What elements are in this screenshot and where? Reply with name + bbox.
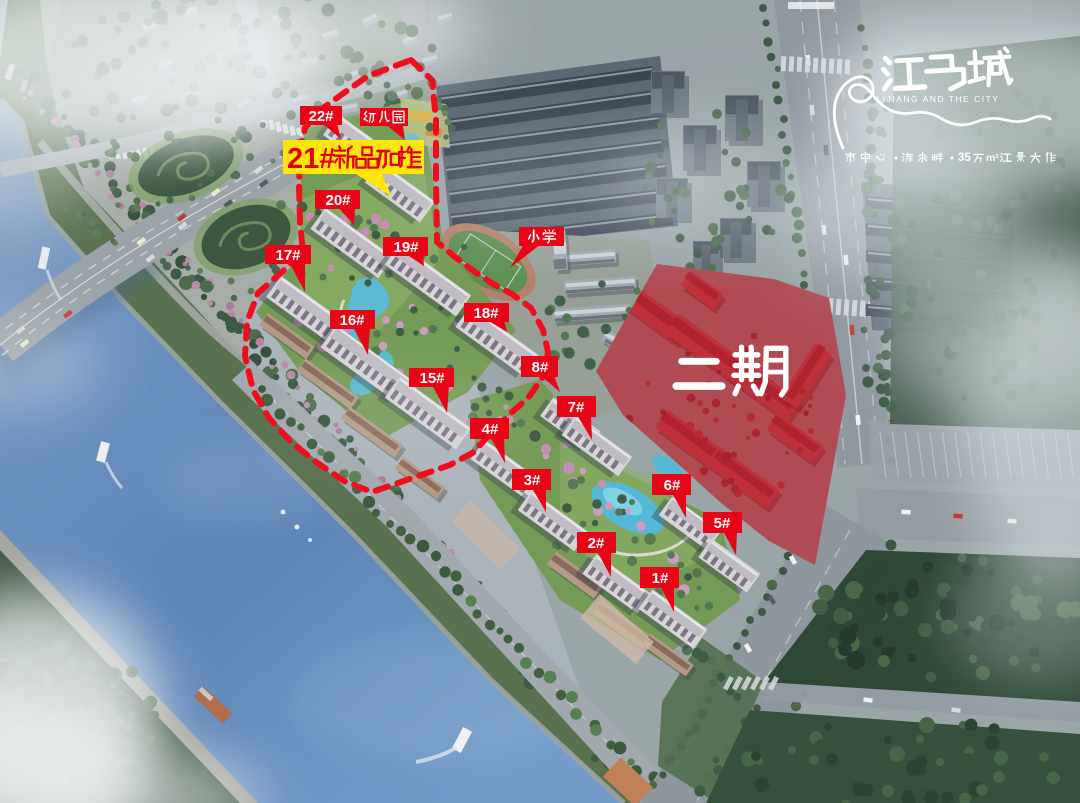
svg-text:15#: 15# — [419, 370, 445, 387]
svg-text:1#: 1# — [652, 570, 669, 587]
svg-text:35: 35 — [958, 152, 971, 164]
svg-text:17#: 17# — [275, 247, 301, 264]
svg-text:2#: 2# — [588, 535, 605, 552]
svg-text:20#: 20# — [325, 192, 351, 209]
svg-text:6#: 6# — [664, 477, 681, 494]
svg-text:5#: 5# — [714, 515, 731, 532]
svg-text:21#: 21# — [287, 143, 335, 175]
svg-text:3#: 3# — [524, 472, 541, 489]
svg-text:7#: 7# — [568, 399, 585, 416]
svg-text:22#: 22# — [308, 108, 334, 125]
svg-text:4#: 4# — [482, 421, 499, 438]
svg-text:LIJIANG AND THE CITY: LIJIANG AND THE CITY — [877, 94, 1000, 104]
svg-text:8#: 8# — [532, 359, 549, 376]
svg-text:19#: 19# — [393, 239, 419, 256]
svg-text:18#: 18# — [473, 305, 499, 322]
svg-text:m²: m² — [986, 152, 999, 164]
svg-text:16#: 16# — [339, 312, 365, 329]
